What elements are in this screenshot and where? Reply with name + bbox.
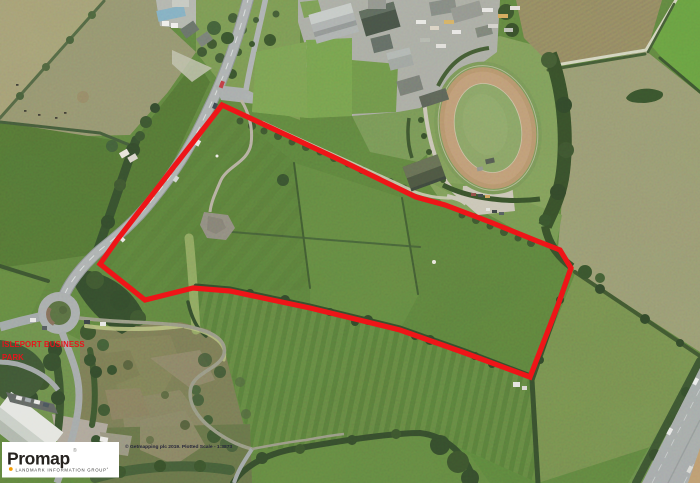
svg-text:®: ®	[73, 447, 77, 454]
svg-text:LANDMARK INFORMATION GROUP˚: LANDMARK INFORMATION GROUP˚	[16, 468, 109, 473]
svg-text:Promap: Promap	[7, 449, 70, 469]
svg-text:PARK: PARK	[2, 353, 24, 362]
svg-text:ISLEPORT BUSINESS: ISLEPORT BUSINESS	[2, 340, 85, 349]
svg-text:© Getmapping plc 2019. Plotted: © Getmapping plc 2019. Plotted Scale - 1…	[125, 443, 232, 450]
